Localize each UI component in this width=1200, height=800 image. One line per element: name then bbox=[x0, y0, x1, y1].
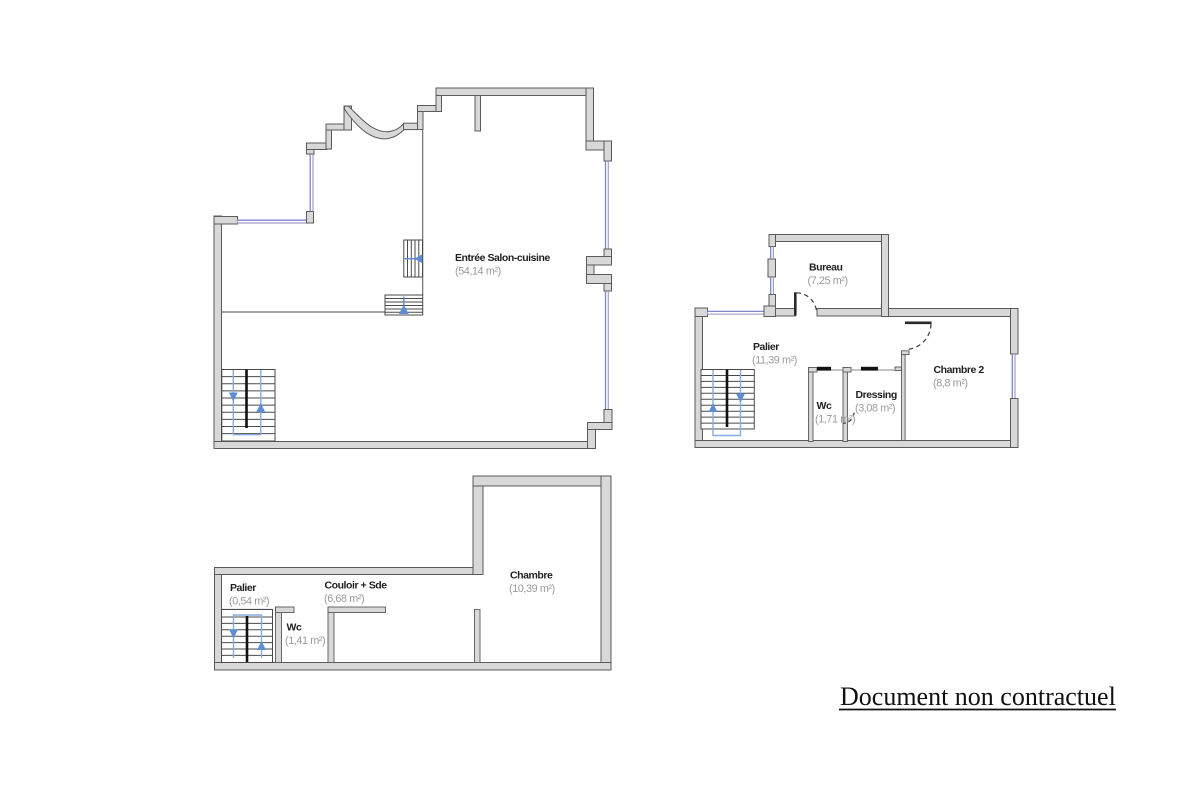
svg-text:(1,71 m²): (1,71 m²) bbox=[815, 414, 855, 426]
svg-text:(8,8 m²): (8,8 m²) bbox=[933, 378, 968, 390]
svg-text:Wc: Wc bbox=[287, 622, 302, 634]
svg-text:Chambre 2: Chambre 2 bbox=[934, 364, 985, 376]
svg-text:(0,54 m²): (0,54 m²) bbox=[229, 596, 269, 608]
svg-text:Palier: Palier bbox=[753, 341, 779, 353]
svg-text:(54,14 m²): (54,14 m²) bbox=[455, 266, 501, 278]
svg-text:Chambre: Chambre bbox=[510, 570, 553, 582]
svg-text:Document non contractuel: Document non contractuel bbox=[840, 682, 1116, 711]
svg-text:Wc: Wc bbox=[817, 400, 832, 412]
svg-text:Palier: Palier bbox=[230, 582, 256, 594]
svg-text:(1,41 m²): (1,41 m²) bbox=[285, 635, 325, 647]
svg-text:Entrée Salon-cuisine: Entrée Salon-cuisine bbox=[455, 252, 550, 264]
svg-text:(11,39 m²): (11,39 m²) bbox=[752, 355, 797, 367]
svg-text:(7,25 m²): (7,25 m²) bbox=[808, 275, 848, 287]
svg-text:Bureau: Bureau bbox=[809, 262, 843, 274]
svg-text:Dressing: Dressing bbox=[856, 389, 897, 401]
svg-text:(6,68 m²): (6,68 m²) bbox=[324, 593, 364, 605]
svg-text:(10,39 m²): (10,39 m²) bbox=[509, 583, 555, 595]
svg-text:(3,08 m²): (3,08 m²) bbox=[855, 403, 895, 415]
svg-text:Couloir + Sde: Couloir + Sde bbox=[325, 580, 388, 592]
